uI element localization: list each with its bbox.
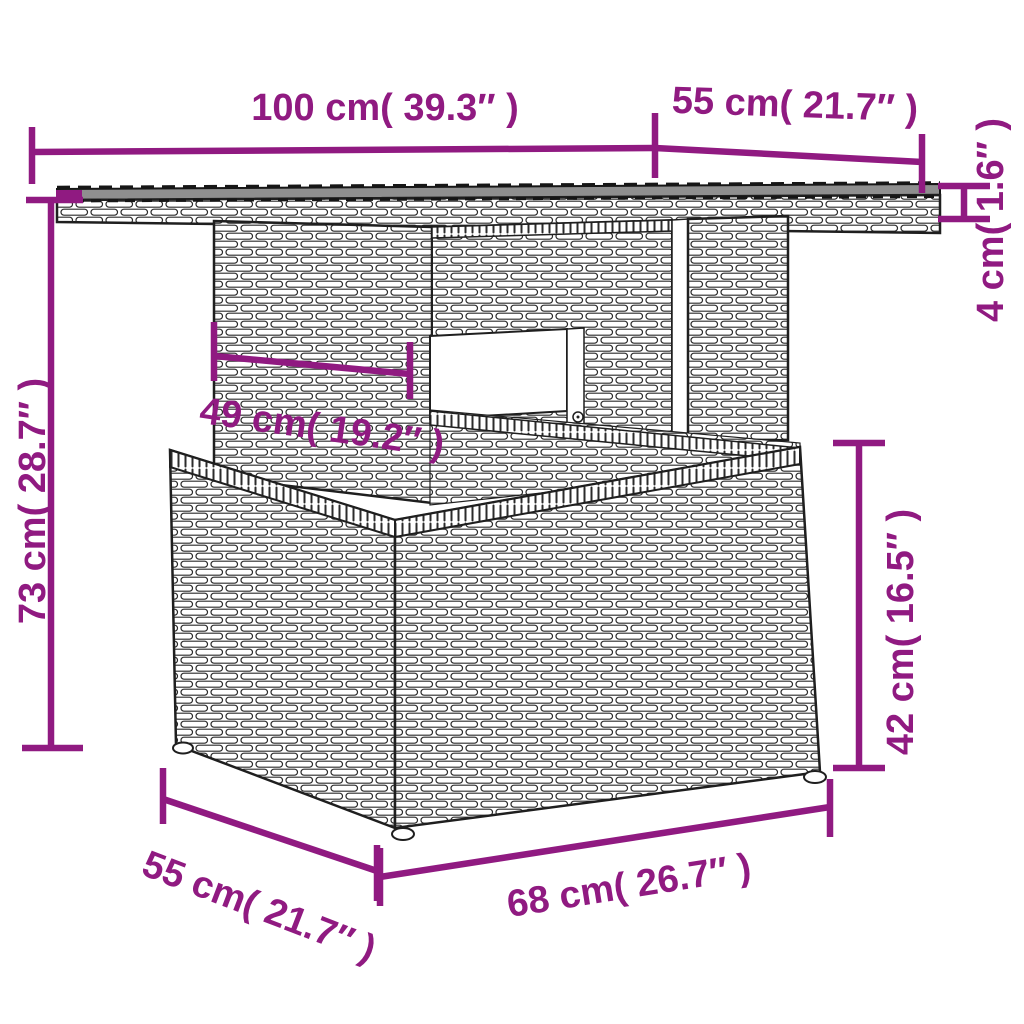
dim-base-height: [833, 443, 885, 768]
dimension-label-top-width: 100 cm( 39.3″ ): [251, 89, 518, 127]
base-foot-right: [804, 771, 826, 783]
base-left-face: [170, 450, 395, 828]
dimension-label-base-height: 42 cm( 16.5″ ): [882, 509, 920, 755]
dimension-label-top-depth: 55 cm( 21.7″ ): [671, 82, 919, 129]
dimension-label-top-thickness: 4 cm( 1.6″ ): [972, 118, 1010, 322]
base-foot-front: [392, 828, 414, 840]
dimension-diagram: 100 cm( 39.3″ ) 55 cm( 21.7″ ) 4 cm( 1.6…: [0, 0, 1024, 1024]
base-front-face: [395, 447, 820, 828]
dimension-label-total-height: 73 cm( 28.7″ ): [14, 378, 52, 624]
base-foot-left: [173, 743, 193, 754]
pedestal-back-gap: [672, 219, 688, 443]
pedestal-window: [430, 329, 567, 419]
dim-line: [32, 148, 655, 152]
dim-line: [655, 148, 922, 162]
pedestal-back-column: [688, 216, 788, 442]
